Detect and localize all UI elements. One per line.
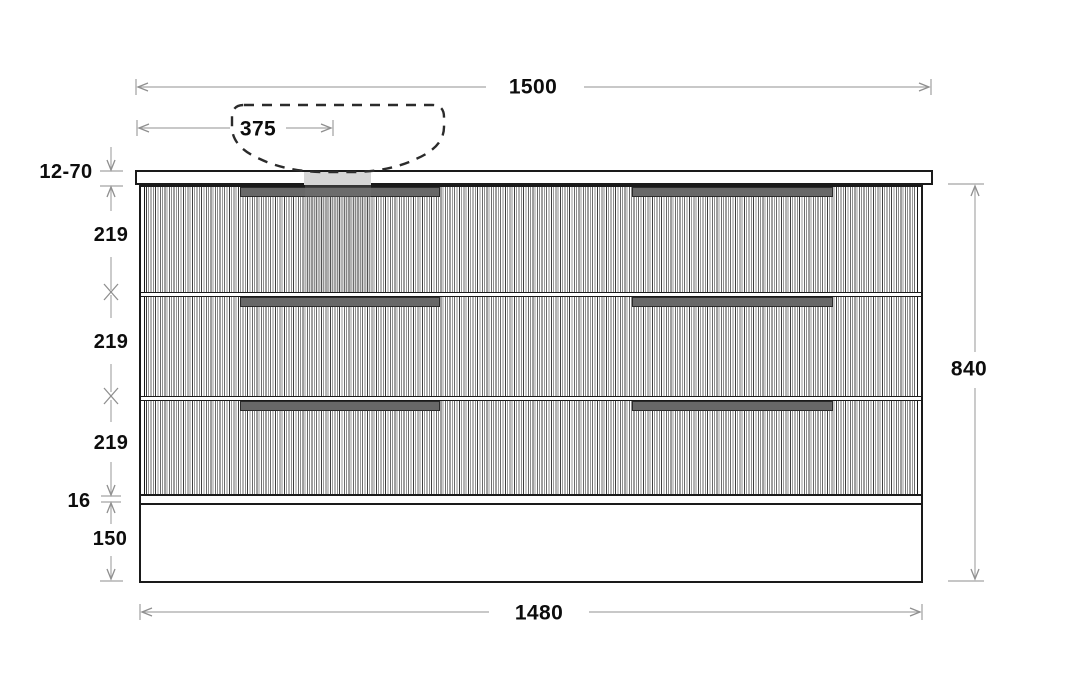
side-rail-left [144,187,145,494]
drawer-row-1 [146,187,916,292]
drawer-handle-bottom-left [240,401,440,411]
drawer-handle-bottom-right [632,401,833,411]
drawer-stack [141,187,921,494]
drawer-handle-middle-left [240,297,440,307]
dimension-label-bottom-panel-gap: 16 [64,491,93,511]
drawer-row-3 [146,401,916,494]
bottom-panel-strip [139,496,923,503]
dimension-label-drawer1-height: 219 [91,225,132,245]
cabinet-body [139,185,923,496]
dimension-label-top-width: 1500 [506,77,560,98]
plinth [139,503,923,583]
drawer-row-2 [146,297,916,396]
plumbing-overlay [305,185,371,292]
drawer-handle-middle-right [632,297,833,307]
dimension-label-benchtop-thickness: 12-70 [36,162,95,182]
dimension-label-cabinet-width: 1480 [512,603,566,624]
dimension-label-overall-height: 840 [948,359,990,380]
technical-drawing-canvas: 1500 375 12-70 219 219 219 16 150 840 14… [0,0,1074,698]
dimension-label-drawer3-height: 219 [91,433,132,453]
dimension-label-drawer2-height: 219 [91,332,132,352]
dimension-label-plinth-height: 150 [90,529,131,549]
side-rail-right [917,187,918,494]
dimension-label-basin-offset: 375 [237,119,279,140]
benchtop [135,170,933,185]
drawer-handle-top-right [632,187,833,197]
plumbing-shade [304,172,371,185]
